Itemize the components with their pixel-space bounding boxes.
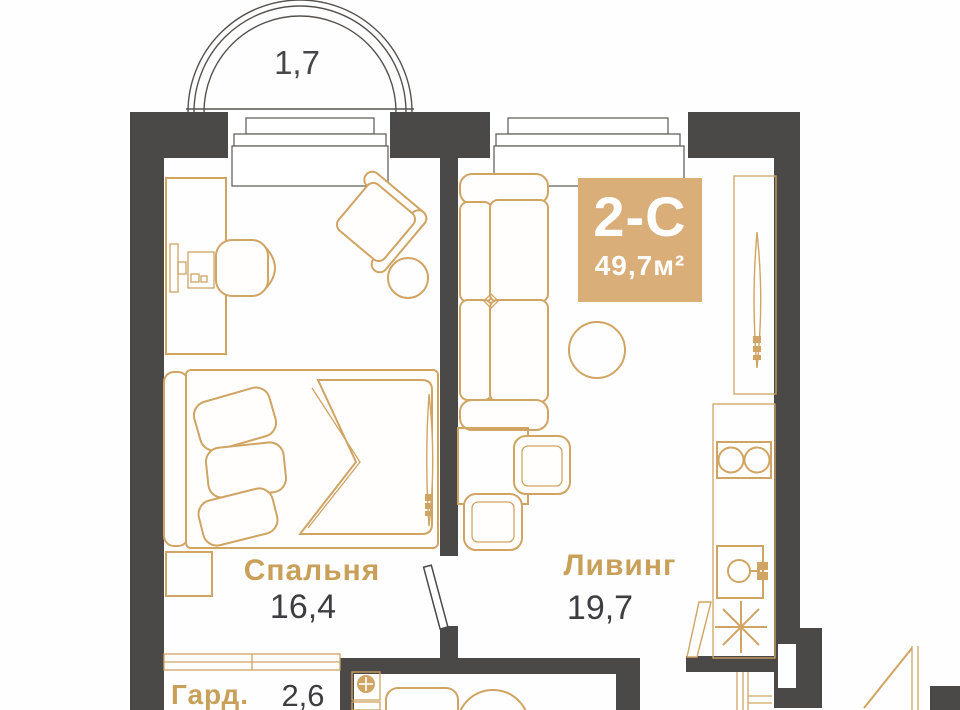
dining-chair-bottom xyxy=(464,494,522,550)
monitor xyxy=(170,244,214,292)
side-table xyxy=(388,258,428,298)
bathtub xyxy=(386,688,458,710)
wardrobe-area-label: 2,6 xyxy=(281,680,324,710)
living-area-label: 19,7 xyxy=(567,591,633,625)
closet xyxy=(164,654,340,670)
bathroom-sink xyxy=(352,672,380,710)
kitchen-cabinet-door xyxy=(687,602,711,657)
bedroom-area-label: 16,4 xyxy=(270,590,336,624)
neighbor-entry-door xyxy=(864,646,918,710)
unit-badge: 2-С 49,7м² xyxy=(578,178,702,302)
wardrobe-name-label: Гард. xyxy=(171,681,249,709)
nightstand xyxy=(166,552,212,596)
hob xyxy=(717,442,771,478)
double-bed xyxy=(164,370,438,549)
office-chair xyxy=(216,240,275,296)
tv-cabinet xyxy=(734,176,776,394)
toilet xyxy=(457,690,529,710)
balcony-area-label: 1,7 xyxy=(274,46,320,79)
floor-plan-drawing xyxy=(0,0,960,710)
bedroom-name-label: Спальня xyxy=(244,556,381,586)
hall-door-frame xyxy=(737,672,772,710)
bedroom-door-leaf xyxy=(424,565,448,629)
unit-type-label: 2-С xyxy=(593,188,686,247)
dining-chair-right xyxy=(514,436,570,494)
living-name-label: Ливинг xyxy=(564,551,677,581)
kitchen-sink xyxy=(717,546,768,598)
unit-area-label: 49,7м² xyxy=(595,250,686,282)
floor-plan: 1,7 2-С 49,7м² Спальня 16,4 Ливинг 19,7 … xyxy=(0,0,960,710)
coffee-table xyxy=(569,322,625,378)
stove-symbol xyxy=(715,601,767,653)
sofa xyxy=(460,174,548,430)
